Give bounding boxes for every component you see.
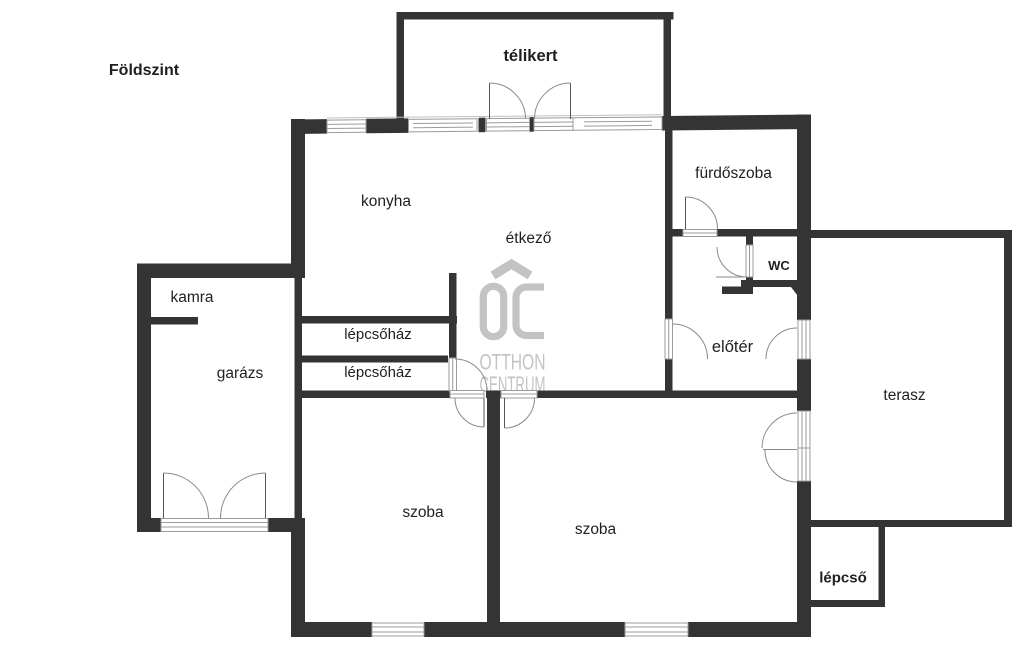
svg-text:kamra: kamra — [170, 289, 213, 306]
svg-text:előtér: előtér — [712, 338, 754, 356]
svg-text:fürdőszoba: fürdőszoba — [695, 165, 772, 182]
svg-text:lépcsőház: lépcsőház — [344, 326, 412, 343]
svg-text:télikert: télikert — [503, 47, 558, 65]
svg-text:terasz: terasz — [883, 387, 925, 404]
svg-text:WC: WC — [768, 258, 790, 273]
svg-text:lépcső: lépcső — [819, 570, 867, 587]
svg-text:OTTHON: OTTHON — [480, 350, 546, 375]
svg-text:garázs: garázs — [217, 365, 264, 382]
svg-text:konyha: konyha — [361, 193, 411, 210]
svg-text:Földszint: Földszint — [109, 62, 180, 79]
svg-text:szoba: szoba — [575, 521, 617, 538]
svg-text:étkező: étkező — [506, 230, 552, 247]
svg-text:szoba: szoba — [402, 504, 444, 521]
svg-text:lépcsőház: lépcsőház — [344, 364, 412, 381]
